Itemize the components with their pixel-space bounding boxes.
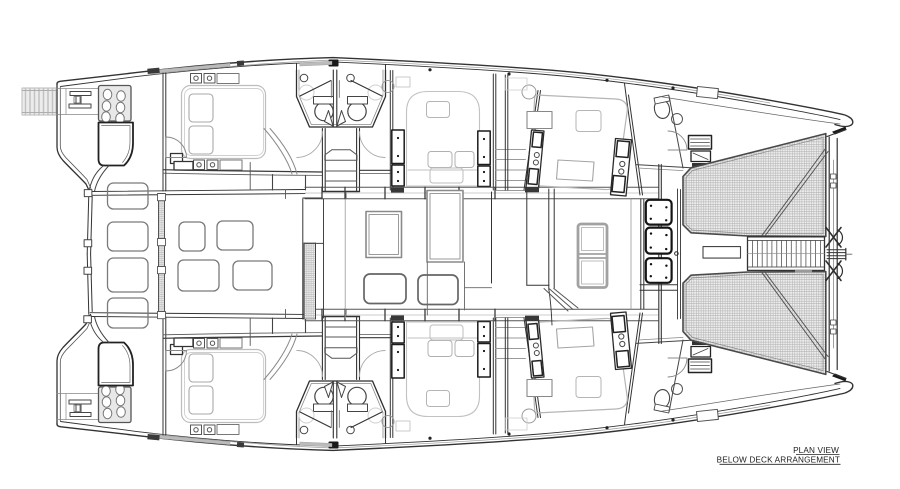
svg-text:PLAN VIEW: PLAN VIEW (793, 446, 839, 455)
svg-text:BELOW DECK ARRANGEMENT: BELOW DECK ARRANGEMENT (717, 455, 840, 464)
